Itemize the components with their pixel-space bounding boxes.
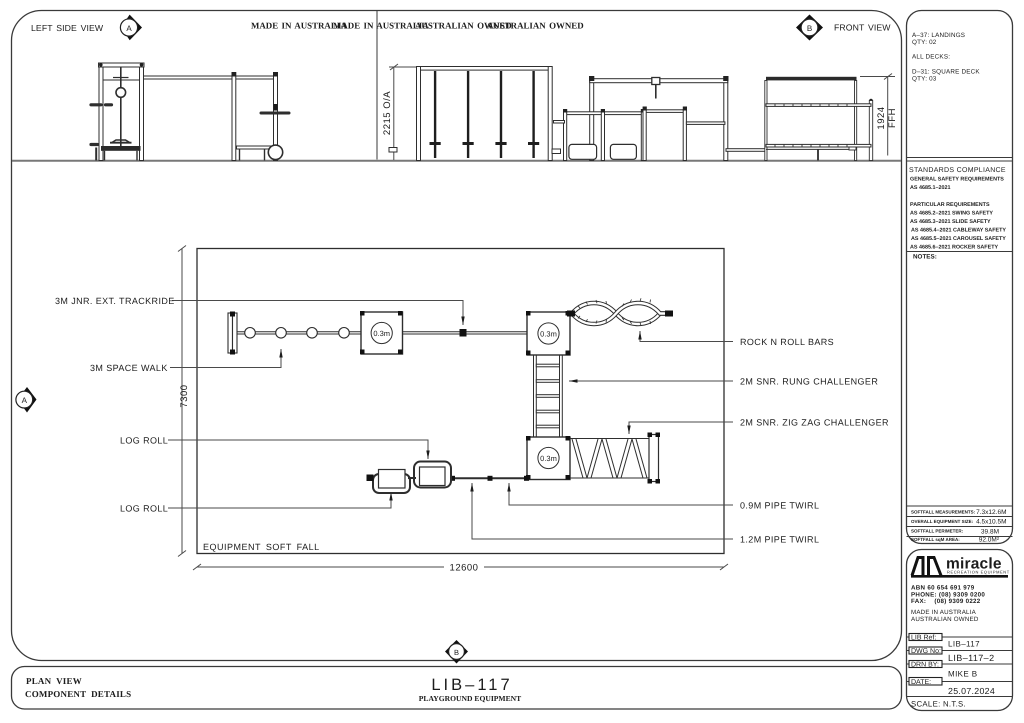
svg-text:AS 4685.6–2021 ROCKER SAFETY: AS 4685.6–2021 ROCKER SAFETY (910, 245, 998, 251)
svg-text:7300: 7300 (179, 384, 190, 407)
svg-text:AS 4685.4–2021 CABLEWAY SAFETY: AS 4685.4–2021 CABLEWAY SAFETY (911, 228, 1006, 234)
svg-text:LIB–117: LIB–117 (948, 640, 980, 649)
svg-text:1.2M PIPE TWIRL: 1.2M PIPE TWIRL (740, 535, 819, 545)
svg-text:FFH: FFH (887, 108, 898, 128)
svg-text:2M SNR. RUNG CHALLENGER: 2M SNR. RUNG CHALLENGER (740, 377, 878, 387)
svg-text:LIB–117: LIB–117 (431, 676, 512, 694)
svg-text:LOG ROLL: LOG ROLL (120, 436, 168, 446)
svg-text:B: B (454, 648, 459, 657)
svg-text:PLAYGROUND EQUIPMENT: PLAYGROUND EQUIPMENT (419, 694, 521, 703)
svg-text:7.3x12.6M: 7.3x12.6M (976, 509, 1006, 516)
svg-text:ABN 60 654 691 979: ABN 60 654 691 979 (911, 585, 975, 592)
svg-text:LOG ROLL: LOG ROLL (120, 504, 168, 514)
svg-text:RECREATION EQUIPMENT: RECREATION EQUIPMENT (947, 570, 1010, 575)
svg-text:OVERALL EQUIPMENT SIZE:: OVERALL EQUIPMENT SIZE: (911, 519, 974, 524)
svg-text:A: A (126, 24, 132, 33)
svg-text:QTY: 02: QTY: 02 (912, 39, 937, 46)
svg-text:A: A (22, 396, 28, 405)
svg-text:3M SPACE WALK: 3M SPACE WALK (90, 363, 168, 373)
svg-text:D–31: SQUARE DECK: D–31: SQUARE DECK (912, 69, 980, 76)
svg-text:0.3m: 0.3m (373, 329, 390, 338)
svg-text:DWG No:: DWG No: (911, 648, 941, 655)
svg-text:AS 4685.3–2021 SLIDE SAFETY: AS 4685.3–2021 SLIDE SAFETY (910, 219, 991, 225)
svg-text:EQUIPMENT SOFT FALL: EQUIPMENT SOFT FALL (203, 542, 320, 552)
svg-text:AUSTRALIAN OWNED: AUSTRALIAN OWNED (487, 21, 584, 31)
svg-text:ROCK N ROLL BARS: ROCK N ROLL BARS (740, 337, 834, 347)
svg-text:12600: 12600 (450, 563, 479, 574)
svg-text:COMPONENT DETAILS: COMPONENT DETAILS (25, 689, 131, 699)
svg-text:SOFTFALL sqM AREA:: SOFTFALL sqM AREA: (911, 537, 960, 542)
svg-text:MIKE B: MIKE B (948, 670, 978, 679)
svg-text:STANDARDS COMPLIANCE: STANDARDS COMPLIANCE (909, 167, 1006, 174)
svg-text:LIB–117–2: LIB–117–2 (948, 653, 994, 663)
svg-text:MADE IN AUSTRALIA: MADE IN AUSTRALIA (911, 609, 977, 616)
svg-text:2M SNR. ZIG ZAG CHALLENGER: 2M SNR. ZIG ZAG CHALLENGER (740, 418, 889, 428)
svg-text:3M JNR. EXT. TRACKRIDE: 3M JNR. EXT. TRACKRIDE (55, 296, 175, 306)
svg-text:SOFTFALL MEASUREMENTS:: SOFTFALL MEASUREMENTS: (911, 510, 976, 515)
svg-text:PARTICULAR REQUIREMENTS: PARTICULAR REQUIREMENTS (910, 202, 990, 208)
svg-text:LIB Ref:: LIB Ref: (911, 634, 936, 642)
svg-text:GENERAL SAFETY REQUIREMENTS: GENERAL SAFETY REQUIREMENTS (910, 177, 1004, 183)
svg-text:B: B (807, 24, 812, 33)
svg-text:SCALE: N.T.S.: SCALE: N.T.S. (911, 700, 966, 709)
svg-text:FAX: (08) 9309 0222: FAX: (08) 9309 0222 (911, 598, 981, 605)
svg-text:SOFTFALL PERIMETER:: SOFTFALL PERIMETER: (911, 529, 964, 534)
svg-text:LEFT SIDE VIEW: LEFT SIDE VIEW (31, 23, 104, 33)
svg-text:AS 4685.5–2021 CAROUSEL SAFETY: AS 4685.5–2021 CAROUSEL SAFETY (911, 236, 1006, 242)
svg-text:FRONT VIEW: FRONT VIEW (834, 23, 891, 33)
svg-text:NOTES:: NOTES: (913, 254, 937, 261)
svg-text:4.5x10.5M: 4.5x10.5M (976, 519, 1006, 526)
svg-text:25.07.2024: 25.07.2024 (948, 686, 995, 696)
svg-text:0.3m: 0.3m (540, 329, 557, 338)
svg-text:0.3m: 0.3m (540, 454, 557, 463)
svg-text:DATE:: DATE: (911, 679, 931, 686)
svg-text:2215 O/A: 2215 O/A (382, 91, 393, 135)
svg-text:92.0M²: 92.0M² (979, 537, 1000, 544)
svg-text:A–37: LANDINGS: A–37: LANDINGS (912, 32, 965, 39)
svg-text:AS 4685.2–2021 SWING SAFETY: AS 4685.2–2021 SWING SAFETY (910, 211, 993, 217)
svg-text:AUSTRALIAN OWNED: AUSTRALIAN OWNED (911, 616, 979, 623)
svg-text:1924: 1924 (876, 106, 887, 129)
svg-text:39.8M: 39.8M (981, 529, 999, 536)
svg-text:PLAN VIEW: PLAN VIEW (26, 676, 82, 686)
svg-text:0.9M PIPE TWIRL: 0.9M PIPE TWIRL (740, 501, 819, 511)
svg-text:DRN BY:: DRN BY: (911, 662, 939, 669)
svg-text:ALL DECKS:: ALL DECKS: (912, 54, 950, 61)
svg-text:AS 4685.1–2021: AS 4685.1–2021 (910, 185, 950, 191)
svg-text:QTY: 03: QTY: 03 (912, 76, 937, 83)
